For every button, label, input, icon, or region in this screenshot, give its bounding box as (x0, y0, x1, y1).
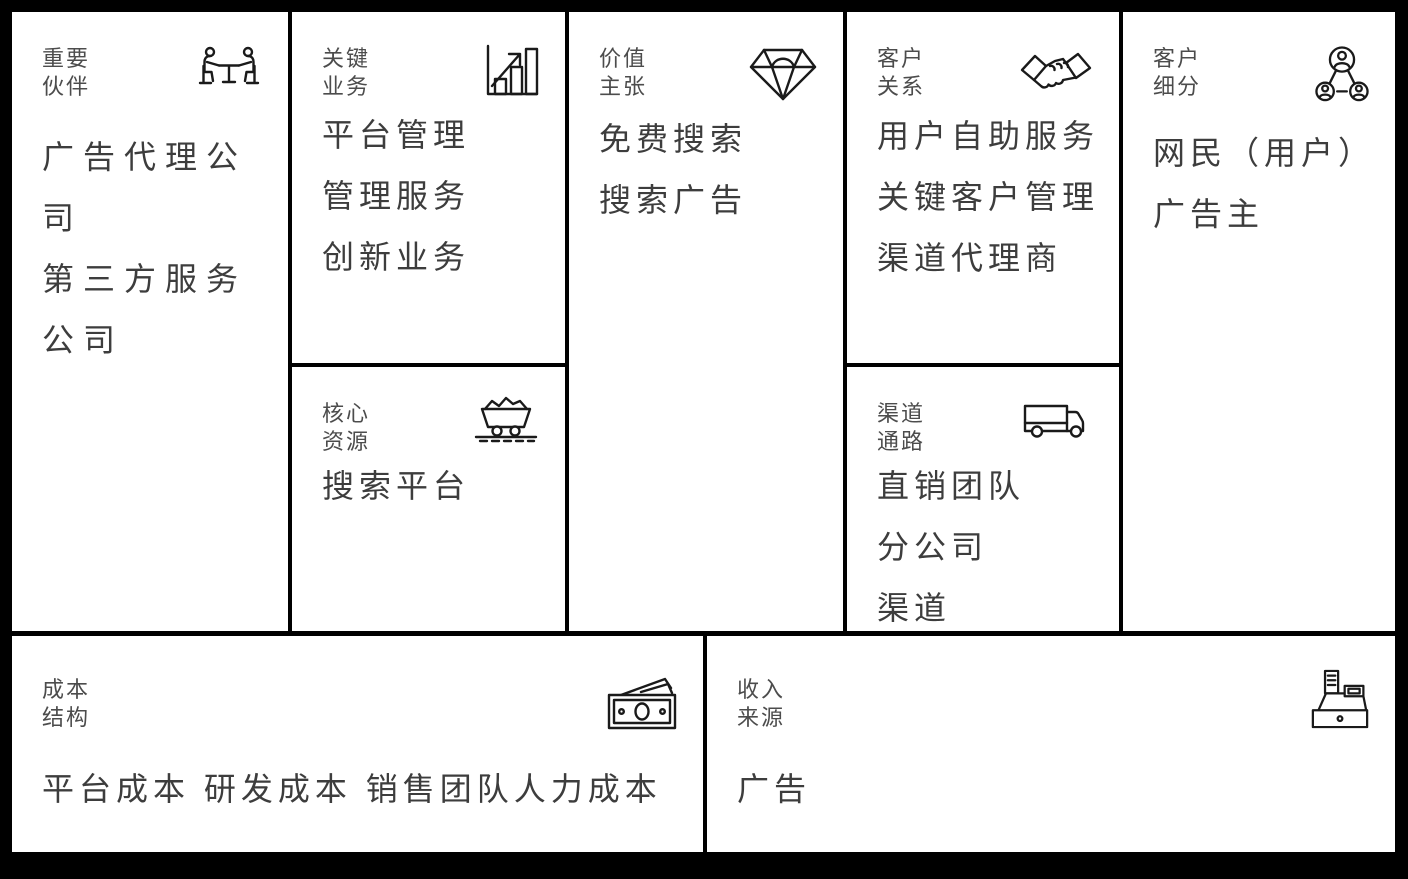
cell-title-line: 细分 (1153, 73, 1201, 101)
canvas-item: 分公司 (877, 517, 1107, 578)
diamond-icon (749, 45, 817, 103)
canvas-item: 创新业务 (322, 227, 553, 288)
cell-title-line: 主张 (599, 73, 647, 101)
cell-title-line: 来源 (737, 704, 785, 732)
cell-title-line: 结构 (42, 704, 90, 732)
cell-key-resources: 核心 资源 搜索平台 (292, 367, 565, 631)
cell-title-line: 核心 (322, 400, 370, 428)
canvas-item: 第三方服务公司 (42, 249, 276, 371)
cash-register-icon (1311, 668, 1369, 730)
cell-title-line: 收入 (737, 676, 785, 704)
canvas-item: 搜索平台 (322, 456, 553, 517)
cell-title-line: 业务 (322, 73, 370, 101)
cell-title-line: 价值 (599, 45, 647, 73)
cell-content: 广告代理公司 第三方服务公司 (42, 127, 276, 371)
cell-key-partners: 重要 伙伴 广告代理公司 第三方服务公司 (12, 12, 288, 631)
cell-title-customer-segments: 客户 细分 (1153, 45, 1201, 101)
cell-content: 免费搜索 搜索广告 (599, 109, 831, 231)
cell-cost-structure: 成本 结构 平台成本 研发成本 销售团队人力成本 (12, 636, 703, 852)
cell-title-value-proposition: 价值 主张 (599, 45, 647, 101)
canvas-item: 平台管理 (322, 105, 553, 166)
canvas-item: 免费搜索 (599, 109, 831, 170)
cell-title-revenue-streams: 收入 来源 (737, 676, 785, 732)
cell-title-line: 关键 (322, 45, 370, 73)
cell-content: 直销团队 分公司 渠道 (877, 456, 1107, 639)
cell-title-line: 客户 (1153, 45, 1201, 73)
cell-title-customer-relationships: 客户 关系 (877, 45, 925, 101)
handshake-icon (1019, 49, 1093, 99)
canvas-item: 渠道代理商 (877, 228, 1107, 289)
cell-title-line: 关系 (877, 73, 925, 101)
cell-content: 平台成本 研发成本 销售团队人力成本 (42, 759, 691, 820)
cell-title-channels: 渠道 通路 (877, 400, 925, 456)
minecart-icon (473, 394, 539, 446)
cell-content: 平台管理 管理服务 创新业务 (322, 105, 553, 288)
cell-customer-segments: 客户 细分 网民（用户） 广告主 (1123, 12, 1395, 631)
cell-title-line: 客户 (877, 45, 925, 73)
canvas-item: 平台成本 研发成本 销售团队人力成本 (42, 759, 691, 820)
cell-content: 网民（用户） 广告主 (1153, 123, 1383, 245)
cell-content: 搜索平台 (322, 456, 553, 517)
canvas-item: 渠道 (877, 578, 1107, 639)
cell-title-line: 资源 (322, 428, 370, 456)
cell-title-key-activities: 关键 业务 (322, 45, 370, 101)
canvas-item: 直销团队 (877, 456, 1107, 517)
truck-icon (1023, 402, 1093, 444)
cell-title-cost-structure: 成本 结构 (42, 676, 90, 732)
cell-value-proposition: 价值 主张 免费搜索 搜索广告 (569, 12, 843, 631)
cell-title-line: 重要 (42, 45, 90, 73)
canvas-item: 管理服务 (322, 166, 553, 227)
cell-title-key-resources: 核心 资源 (322, 400, 370, 456)
network-people-icon (1315, 45, 1369, 105)
cell-title-line: 伙伴 (42, 73, 90, 101)
cell-title-key-partners: 重要 伙伴 (42, 45, 90, 101)
cell-channels: 渠道 通路 直销团队 分公司 渠道 (847, 367, 1119, 631)
canvas-item: 网民（用户） (1153, 123, 1383, 184)
canvas-item: 广告代理公司 (42, 127, 276, 249)
banknotes-icon (607, 674, 677, 730)
cell-content: 广告 (737, 759, 1383, 820)
cell-content: 用户自助服务 关键客户管理 渠道代理商 (877, 106, 1107, 289)
cell-customer-relationships: 客户 关系 用户自助服务 关键客户管理 渠道代理商 (847, 12, 1119, 363)
bar-chart-icon (481, 41, 539, 99)
canvas-item: 搜索广告 (599, 170, 831, 231)
cell-title-line: 通路 (877, 428, 925, 456)
cell-title-line: 渠道 (877, 400, 925, 428)
canvas-item: 广告主 (1153, 184, 1383, 245)
cell-key-activities: 关键 业务 平台管理 管理服务 创新业务 (292, 12, 565, 363)
cell-title-line: 成本 (42, 676, 90, 704)
canvas-item: 关键客户管理 (877, 167, 1107, 228)
meeting-icon (196, 45, 262, 91)
cell-revenue-streams: 收入 来源 广告 (707, 636, 1395, 852)
canvas-item: 用户自助服务 (877, 106, 1107, 167)
canvas-item: 广告 (737, 759, 1383, 820)
